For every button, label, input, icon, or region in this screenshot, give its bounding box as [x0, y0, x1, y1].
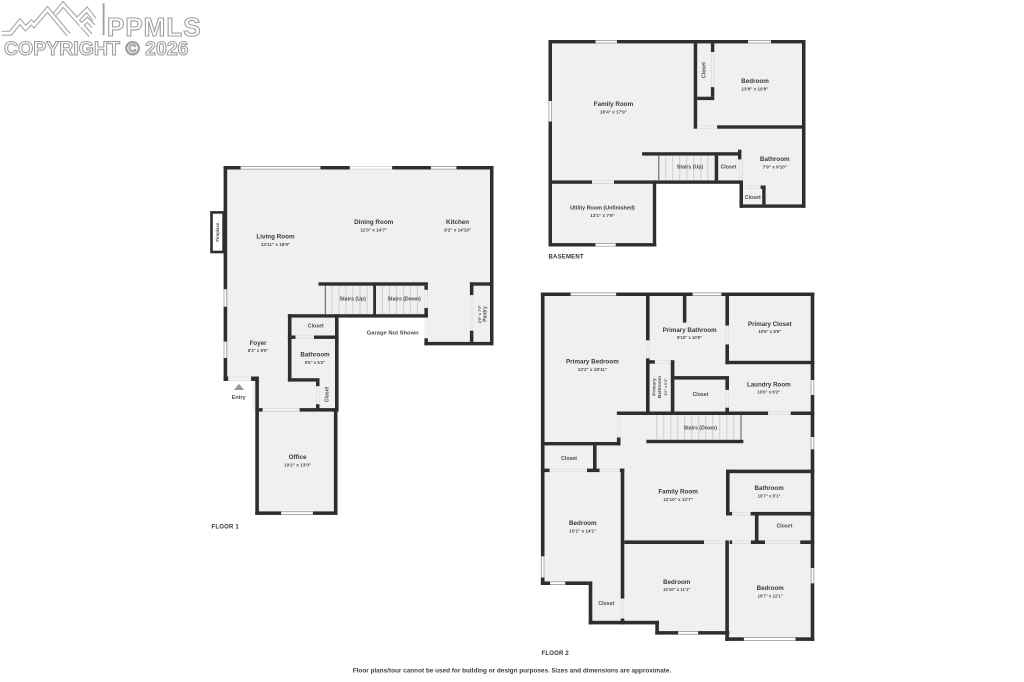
- svg-text:10'2" x 13'0": 10'2" x 13'0": [284, 463, 311, 468]
- svg-text:Closet: Closet: [745, 195, 761, 201]
- svg-text:Closet: Closet: [598, 601, 614, 607]
- svg-text:Garage Not Shown: Garage Not Shown: [367, 331, 419, 337]
- svg-text:Family Room: Family Room: [594, 101, 634, 108]
- svg-text:11'0" x 14'7": 11'0" x 14'7": [360, 227, 387, 232]
- svg-text:12'10" x 12'7": 12'10" x 12'7": [663, 497, 693, 502]
- svg-text:Closet: Closet: [701, 62, 707, 78]
- svg-text:Foyer: Foyer: [250, 340, 267, 347]
- svg-text:Closet: Closet: [325, 387, 331, 403]
- svg-text:Bedroom: Bedroom: [757, 585, 785, 592]
- svg-text:Closet: Closet: [693, 392, 709, 398]
- svg-text:10'6" x 6'2": 10'6" x 6'2": [757, 389, 780, 394]
- svg-text:12'10" x 11'1": 12'10" x 11'1": [663, 587, 690, 592]
- svg-text:Closet: Closet: [308, 324, 324, 330]
- svg-text:2'5" x 7'5": 2'5" x 7'5": [477, 305, 482, 324]
- svg-text:Bathroom: Bathroom: [754, 485, 784, 492]
- svg-text:Family Room: Family Room: [658, 488, 698, 495]
- svg-text:Office: Office: [289, 454, 307, 461]
- svg-text:13'2" x 18'11": 13'2" x 18'11": [578, 367, 607, 372]
- svg-text:Living Room: Living Room: [256, 234, 295, 241]
- svg-text:5'6" x 5'2": 5'6" x 5'2": [305, 360, 325, 365]
- svg-text:Closet: Closet: [561, 456, 577, 462]
- svg-text:Closet: Closet: [777, 524, 793, 530]
- svg-text:Primary Bedroom: Primary Bedroom: [566, 359, 619, 366]
- svg-text:Primary Bathroom: Primary Bathroom: [663, 327, 717, 334]
- svg-text:FLOOR 1: FLOOR 1: [212, 525, 240, 531]
- svg-text:Primary Closet: Primary Closet: [748, 321, 792, 328]
- svg-text:Bedroom: Bedroom: [569, 520, 597, 527]
- svg-text:8'3" x 8'0": 8'3" x 8'0": [248, 348, 268, 353]
- svg-text:13'6" x 10'8": 13'6" x 10'8": [742, 87, 769, 92]
- svg-text:Dining Room: Dining Room: [354, 219, 394, 226]
- svg-text:Kitchen: Kitchen: [446, 219, 469, 226]
- svg-text:Stairs (Up): Stairs (Up): [677, 165, 704, 171]
- svg-text:10'1" x 14'1": 10'1" x 14'1": [569, 528, 596, 533]
- svg-text:Utility Room (Unfinished): Utility Room (Unfinished): [570, 205, 635, 211]
- svg-text:Bathroom: Bathroom: [657, 376, 662, 398]
- svg-text:COPYRIGHT © 2026: COPYRIGHT © 2026: [4, 38, 189, 60]
- svg-text:18'4" x 17'9": 18'4" x 17'9": [600, 110, 627, 115]
- svg-text:Floor plans/tour cannot be use: Floor plans/tour cannot be used for buil…: [353, 668, 672, 675]
- svg-text:FLOOR 2: FLOOR 2: [542, 651, 570, 657]
- svg-text:Closet: Closet: [721, 165, 737, 171]
- svg-text:3'0" x 6'4": 3'0" x 6'4": [664, 378, 668, 395]
- svg-text:Fireplace: Fireplace: [215, 222, 220, 241]
- svg-text:Laundry Room: Laundry Room: [747, 381, 791, 388]
- svg-text:Pantry: Pantry: [482, 306, 488, 322]
- svg-text:9'2" x 14'10": 9'2" x 14'10": [444, 227, 471, 232]
- svg-text:Bedroom: Bedroom: [663, 579, 691, 586]
- svg-text:Stairs (Down): Stairs (Down): [387, 297, 421, 303]
- svg-text:10'7" x 5'1": 10'7" x 5'1": [758, 493, 781, 498]
- svg-text:Bedroom: Bedroom: [741, 78, 769, 85]
- svg-text:10'7" x 12'1": 10'7" x 12'1": [758, 593, 783, 598]
- svg-text:9'10" x 10'5": 9'10" x 10'5": [677, 335, 702, 340]
- svg-text:Stairs (Down): Stairs (Down): [684, 426, 718, 432]
- svg-text:Primary: Primary: [651, 378, 656, 396]
- svg-text:Bathroom: Bathroom: [760, 156, 790, 163]
- svg-text:Entry: Entry: [232, 395, 246, 401]
- svg-text:13'1" x 7'9": 13'1" x 7'9": [590, 213, 614, 218]
- svg-text:7'9" x 9'10": 7'9" x 9'10": [763, 165, 787, 170]
- svg-text:10'6" x 8'6": 10'6" x 8'6": [758, 329, 781, 334]
- svg-text:13'11" x 18'9": 13'11" x 18'9": [261, 242, 290, 247]
- svg-text:Bathroom: Bathroom: [300, 352, 330, 359]
- svg-text:BASEMENT: BASEMENT: [549, 255, 584, 261]
- svg-text:Stairs (Up): Stairs (Up): [340, 297, 367, 303]
